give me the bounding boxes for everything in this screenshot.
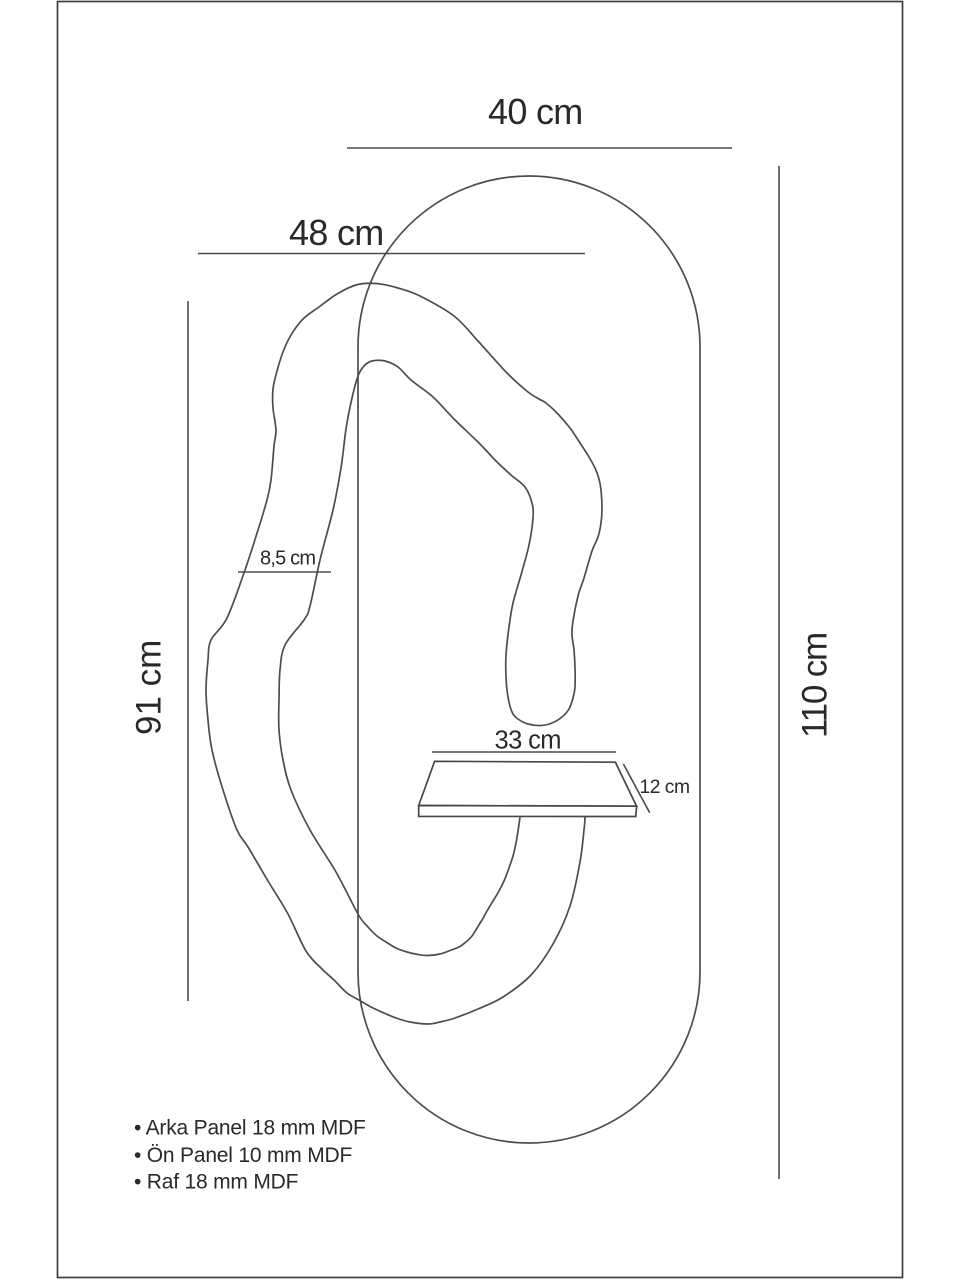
svg-text:91 cm: 91 cm <box>130 640 169 735</box>
svg-text:• Ön Panel 10 mm MDF: • Ön Panel 10 mm MDF <box>134 1144 352 1167</box>
svg-text:33 cm: 33 cm <box>495 727 561 755</box>
svg-text:48 cm: 48 cm <box>289 212 384 253</box>
svg-text:8,5 cm: 8,5 cm <box>260 548 315 570</box>
svg-text:12 cm: 12 cm <box>640 777 690 798</box>
svg-text:• Raf 18 mm MDF: • Raf 18 mm MDF <box>134 1171 298 1194</box>
svg-text:40 cm: 40 cm <box>488 91 583 132</box>
svg-text:110 cm: 110 cm <box>796 633 835 738</box>
svg-text:• Arka Panel 18 mm MDF: • Arka Panel 18 mm MDF <box>134 1116 366 1139</box>
